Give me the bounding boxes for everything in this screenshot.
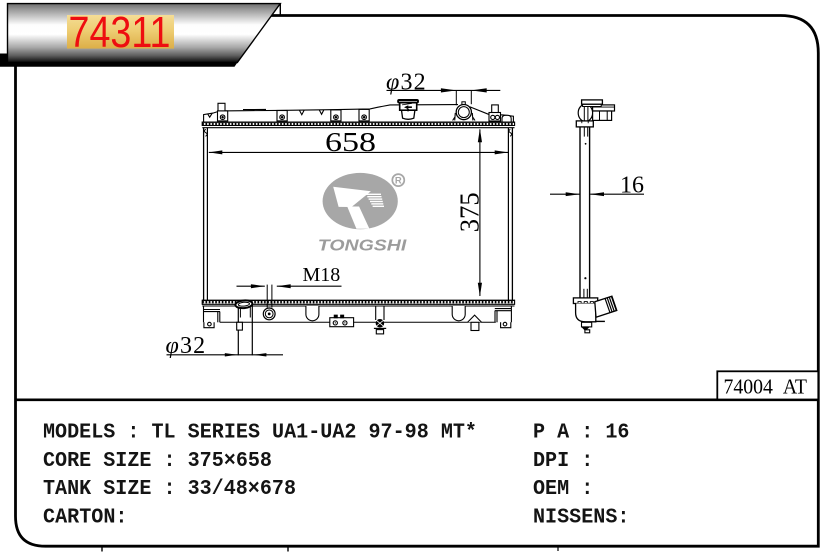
svg-text:CARTON:: CARTON: [43,506,128,529]
svg-text:P A : 16: P A : 16 [533,422,630,445]
svg-text:TONGSHI: TONGSHI [318,237,407,254]
svg-text:MODELS : TL SERIES UA1-UA2 97-: MODELS : TL SERIES UA1-UA2 97-98 MT* [43,422,477,445]
svg-text:φ32: φ32 [386,70,427,96]
svg-text:TANK SIZE : 33/48×678: TANK SIZE : 33/48×678 [43,478,296,501]
svg-text:M18: M18 [303,264,341,286]
svg-text:74004 AT: 74004 AT [724,375,808,399]
svg-text:375: 375 [454,192,484,232]
svg-text:R: R [395,176,402,187]
svg-text:NISSENS:: NISSENS: [533,506,630,529]
svg-text:DPI :: DPI : [533,450,593,473]
svg-text:CORE SIZE : 375×658: CORE SIZE : 375×658 [43,450,272,473]
svg-text:OEM :: OEM : [533,478,593,501]
svg-text:658: 658 [325,127,376,157]
svg-text:74311: 74311 [69,8,171,57]
svg-text:16: 16 [620,172,644,198]
